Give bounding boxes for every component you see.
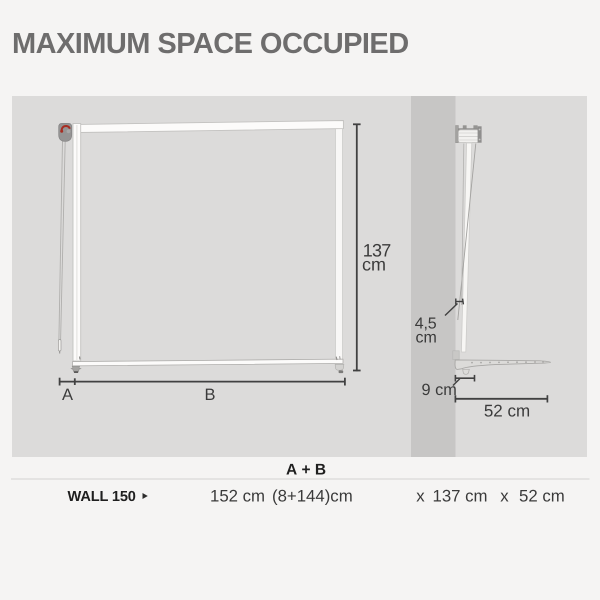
svg-text:152 cm: 152 cm [210, 486, 265, 505]
svg-text:A: A [62, 386, 73, 404]
svg-text:A + B: A + B [286, 462, 326, 479]
svg-text:(8+144)cm: (8+144)cm [272, 486, 353, 505]
svg-text:137 cm: 137 cm [433, 486, 488, 505]
svg-text:WALL 150: WALL 150 [68, 489, 136, 505]
svg-text:9 cm: 9 cm [422, 381, 457, 399]
svg-text:cm: cm [362, 255, 386, 275]
svg-text:52 cm: 52 cm [484, 401, 530, 420]
svg-text:cm: cm [416, 330, 437, 347]
svg-text:B: B [204, 386, 215, 404]
svg-text:x: x [416, 486, 425, 505]
svg-text:x: x [500, 486, 509, 505]
svg-text:52 cm: 52 cm [519, 486, 565, 505]
